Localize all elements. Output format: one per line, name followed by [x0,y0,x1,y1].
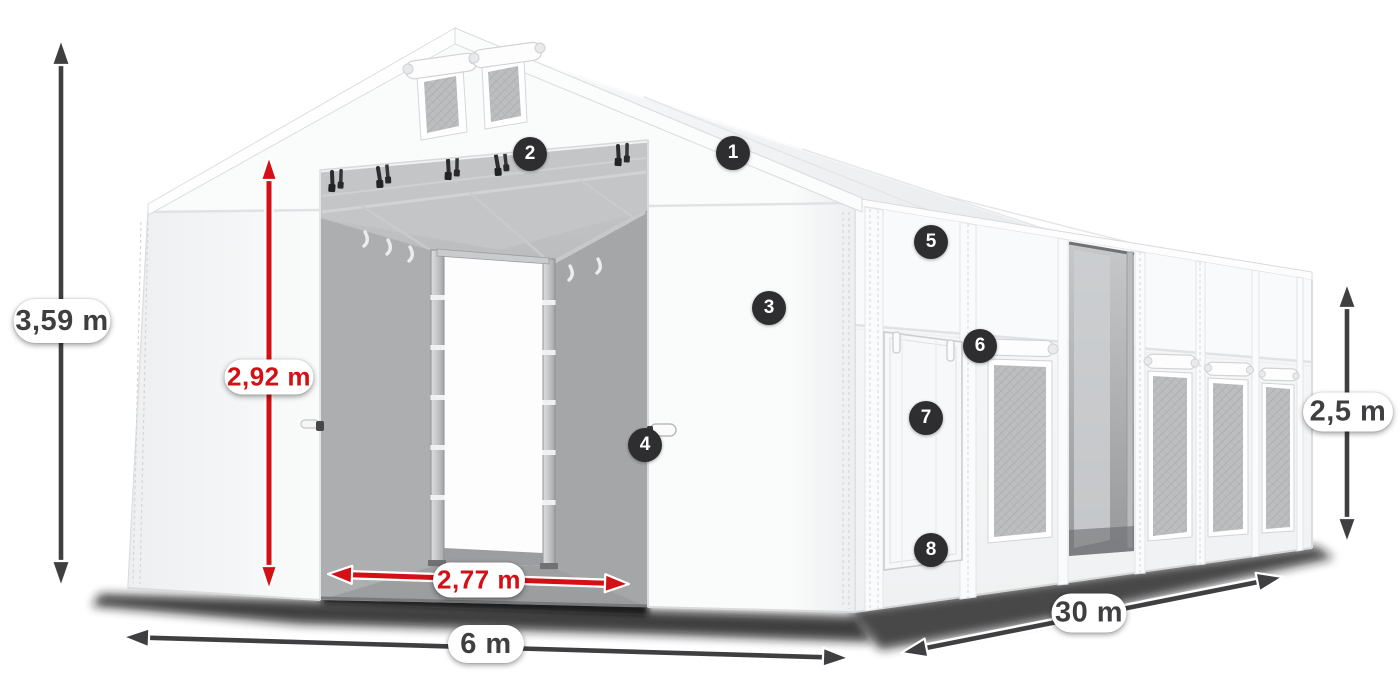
feature-marker-8[interactable]: 8 [914,533,948,567]
feature-marker-3[interactable]: 3 [752,291,786,325]
feature-marker-7[interactable]: 7 [909,401,943,435]
feature-marker-4[interactable]: 4 [628,428,662,462]
door-hook [947,340,954,361]
left-corner-panel [128,210,320,600]
side-window [983,339,1058,543]
front-entrance-interior [320,140,648,607]
right-corner-panel [790,178,855,612]
side-window [1259,368,1299,533]
corner-seam [865,207,883,611]
feature-marker-6[interactable]: 6 [963,329,997,363]
dimension-door-width-label: 2,77 m [433,563,525,598]
inner-doorway [444,253,543,566]
dimension-side-height-label: 2,5 m [1303,393,1393,432]
feature-marker-2[interactable]: 2 [513,137,547,171]
dimension-total-height-label: 3,59 m [14,299,111,343]
tent-dimension-diagram: 3,59 m 2,92 m 2,77 m 6 m 30 m 2,5 m 1 2 … [0,0,1400,700]
side-window [1144,354,1199,541]
side-door-opening [1069,243,1134,556]
dimension-front-width-label: 6 m [448,625,524,663]
side-window [1204,362,1253,537]
door-hook [893,332,900,353]
dimension-length-label: 30 m [1052,594,1127,633]
tent-illustration [0,0,1400,700]
feature-marker-5[interactable]: 5 [914,225,948,259]
dimension-door-height-label: 2,92 m [225,360,314,395]
feature-marker-1[interactable]: 1 [716,136,750,170]
